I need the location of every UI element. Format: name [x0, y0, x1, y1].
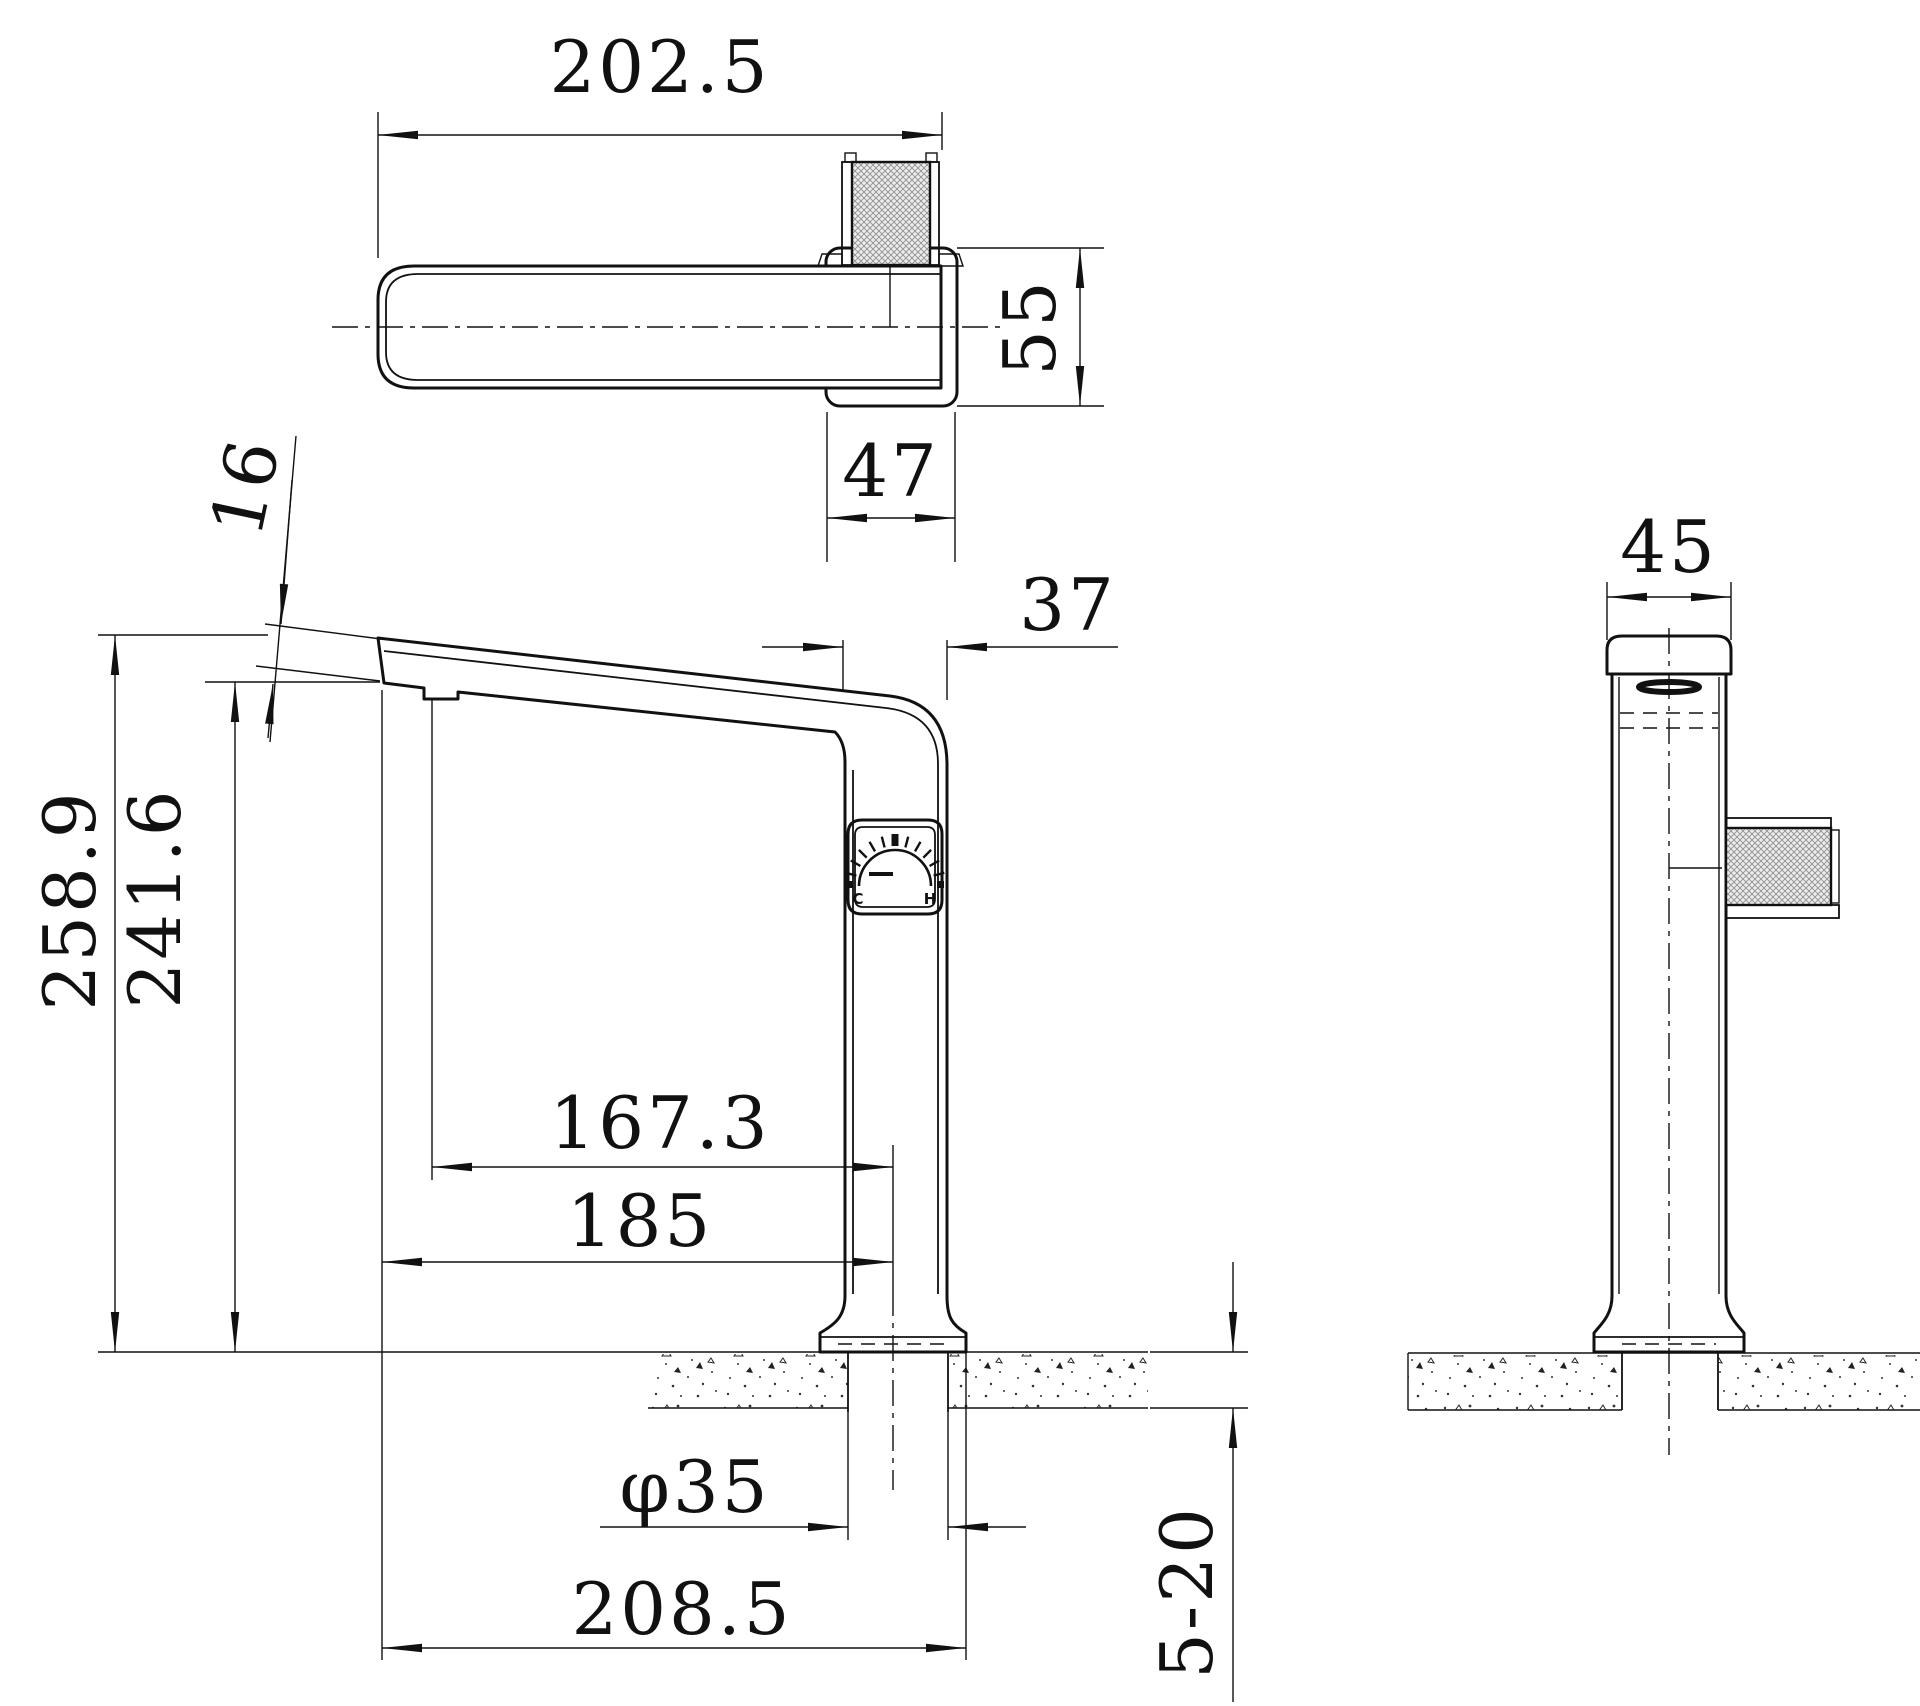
dim-aerator-to-center-label: 167.3	[549, 1081, 770, 1165]
dial-cold-end-mark	[846, 881, 853, 888]
knob-side-knurled-face	[1726, 828, 1831, 905]
dim-top-length-label: 202.5	[549, 25, 770, 109]
dim-deck-thickness-label: 5-20	[1145, 1505, 1229, 1679]
knob-plan-nub-right	[926, 153, 937, 162]
side-view: 45	[1408, 505, 1920, 1455]
top-view: 202.5 55 47	[332, 25, 1104, 562]
technical-drawing-page: 202.5 55 47	[0, 0, 1920, 1706]
faucet-dimension-drawing: 202.5 55 47	[0, 0, 1920, 1706]
knob-side-top-cap	[1726, 818, 1831, 828]
dim-tip-to-base-label: 208.5	[571, 1567, 792, 1651]
counter-section-left	[648, 1354, 848, 1408]
ext-line-tip-bottom	[256, 666, 380, 681]
knob-side-base-plate	[1726, 905, 1839, 918]
dim-shank-diameter-label: φ35	[619, 1445, 770, 1529]
ext-line-tip-top	[265, 624, 381, 639]
knob-plan-nub-left	[845, 153, 856, 162]
counter-section-left	[1408, 1355, 1622, 1410]
dim-overall-height-label: 258.9	[28, 789, 112, 1010]
dim-top-depth-label: 55	[988, 278, 1072, 376]
dim-front-body-width-label: 37	[1019, 563, 1117, 647]
dim-spout-height-label: 241.6	[113, 787, 197, 1008]
dial-hot-end-mark	[937, 881, 944, 888]
dial-cold-label: C	[852, 890, 863, 908]
counter-section-right	[1718, 1355, 1920, 1410]
dim-tip-thickness-label: 16	[194, 430, 296, 543]
counter-section-right	[948, 1354, 1148, 1408]
dim-tip-to-center-label: 185	[567, 1179, 713, 1263]
knob-plan-knurled-face	[852, 162, 930, 265]
dial-hot-label: H	[924, 890, 937, 908]
dim-top-body-width-label: 47	[842, 429, 940, 513]
front-view: C H 258.9 241.6 16 37 167.3 185	[28, 430, 1248, 1702]
dim-side-width-label: 45	[1620, 505, 1718, 589]
